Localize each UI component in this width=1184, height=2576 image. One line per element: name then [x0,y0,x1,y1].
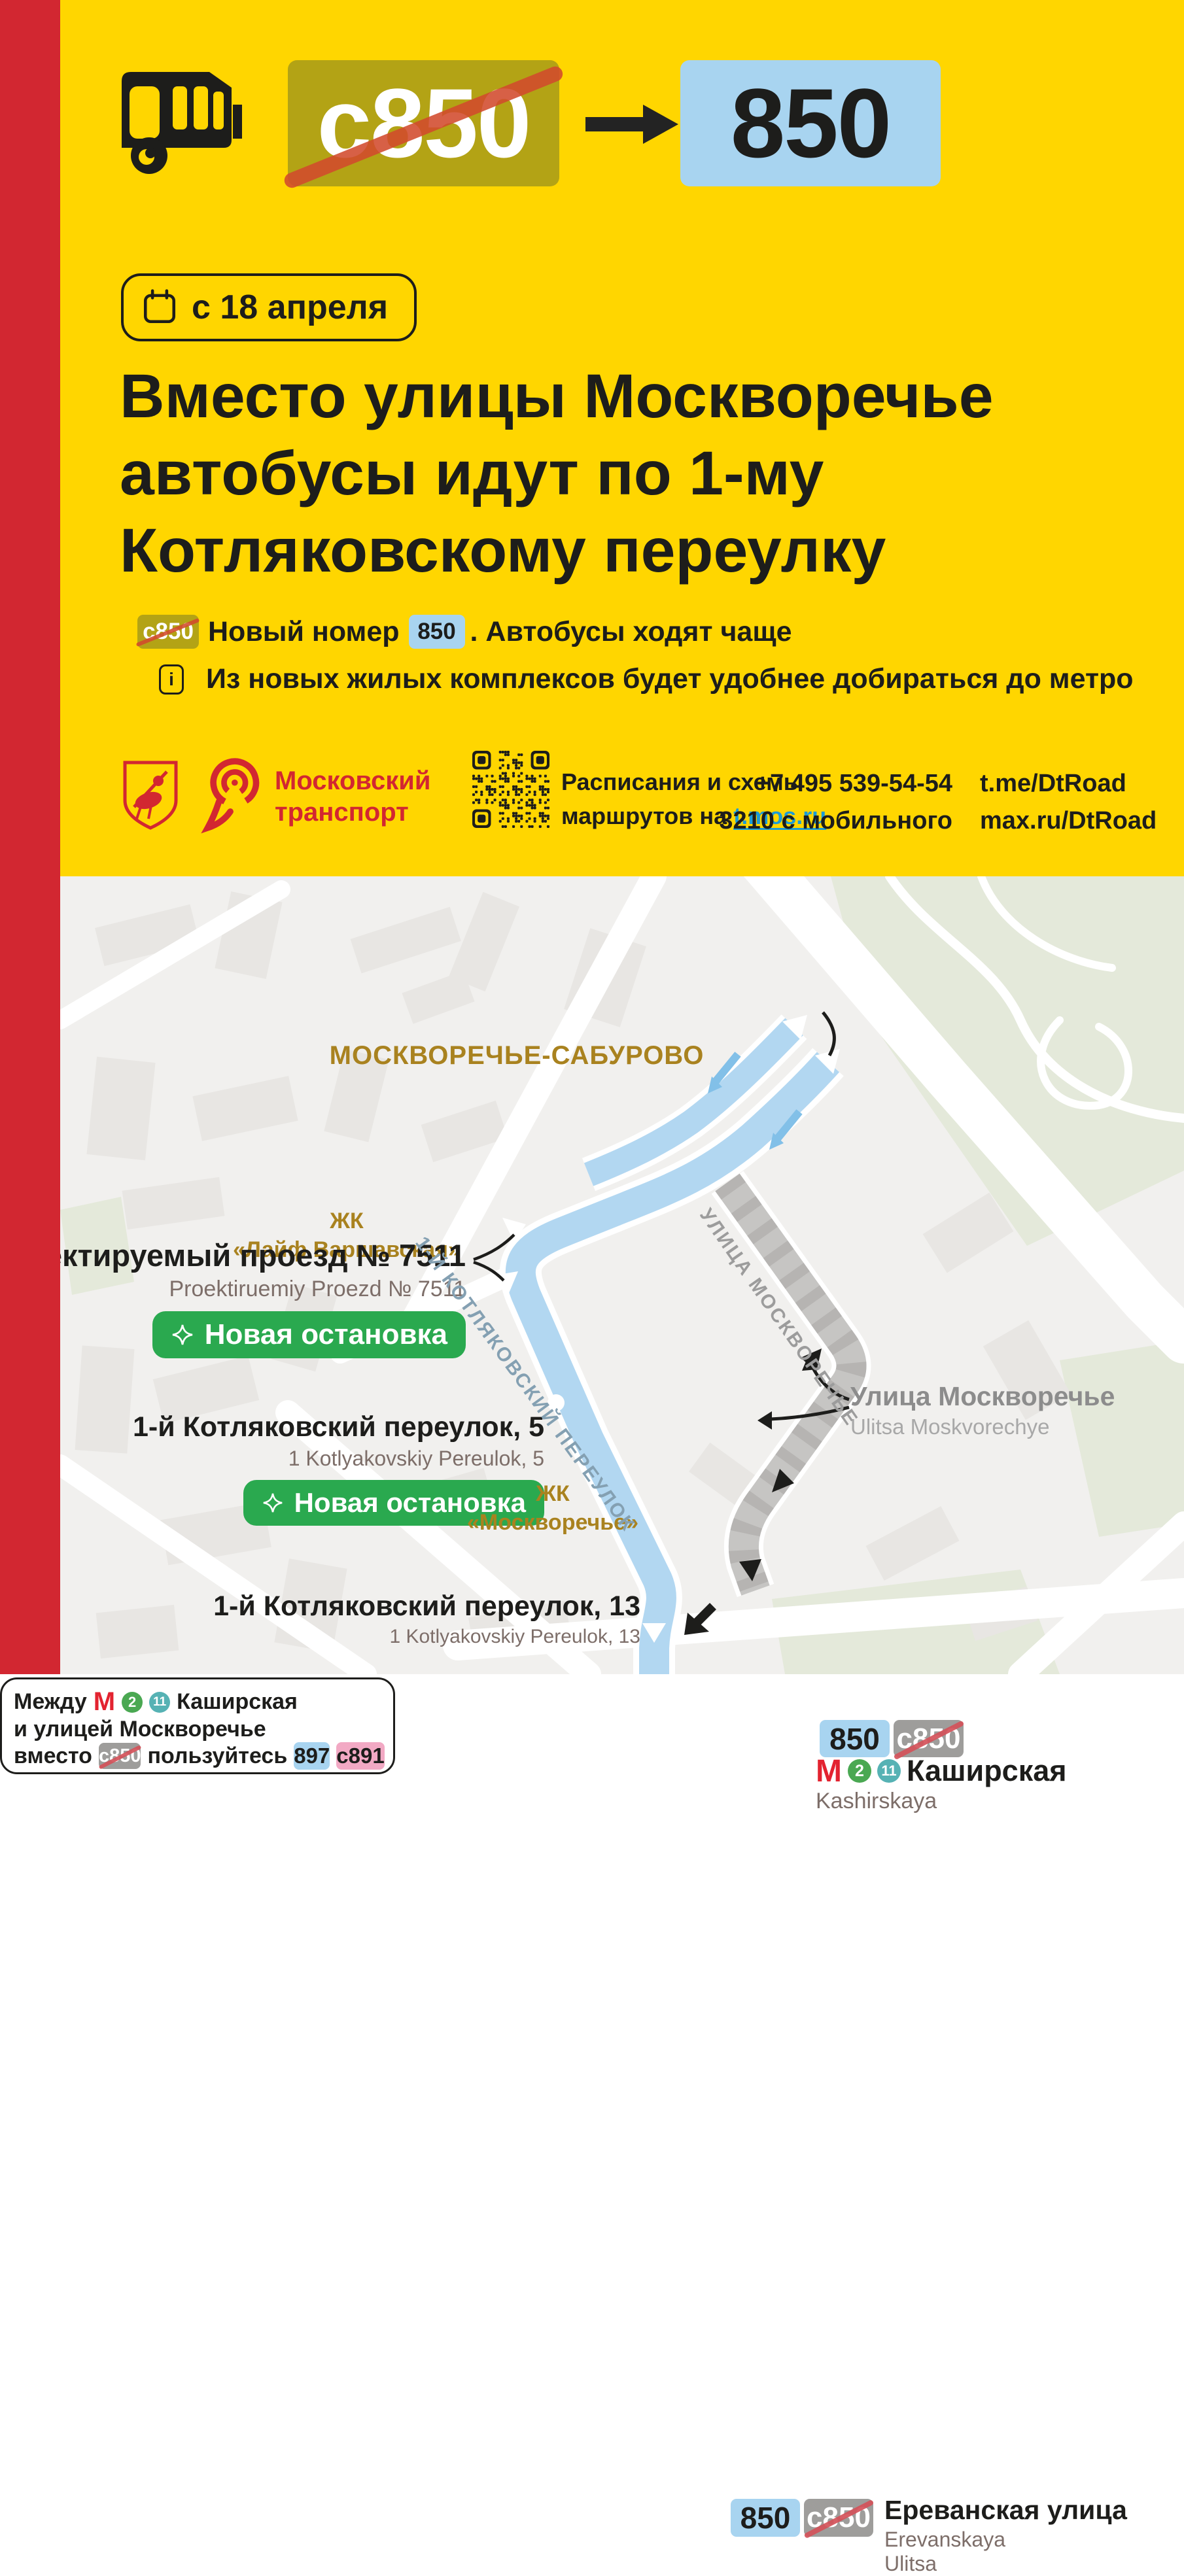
stop-proezd-7511: Проектируемый проезд № 7511 Proektiruemi… [65,1237,466,1358]
moscow-coat-of-arms-icon [121,759,180,832]
route-c850-cancelled-badge: с850 [894,1720,964,1757]
new-route-number-badge: 850 [680,60,941,186]
moscow-transport-logo-icon [200,753,263,836]
moskvorechye-street-label: Улица Москворечье Ulitsa Moskvorechye [850,1381,1115,1439]
calendar-icon [141,288,179,326]
route-c891-badge: с891 [336,1742,384,1770]
arrow-right-icon [580,98,678,150]
route-897-badge: 897 [294,1742,330,1770]
bullet-new-number: с850 Новый номер 850 . Автобусы ходят ча… [137,615,792,649]
metro-line-11-icon: 11 [149,1692,170,1713]
headline: Вместо улицы Москворечье автобусы идут п… [120,358,1153,589]
sparkle-diamond-icon [171,1323,194,1347]
metro-logo-icon: М [816,1753,842,1789]
qr-code [472,751,549,828]
station-name: Каширская [907,1754,1067,1788]
metro-logo-icon: М [94,1687,115,1717]
announcement-panel: с850 850 с 18 апреля Вместо улицы Москво… [60,0,1184,876]
district-label: МОСКВОРЕЧЬЕ-САБУРОВО [275,1039,759,1073]
metro-line-11-icon: 11 [877,1759,901,1783]
bullet-info: i Из новых жилых комплексов будет удобне… [159,663,1134,695]
old-route-small-badge: с850 [137,615,199,649]
street-name: Ереванская улица [884,2495,1127,2526]
new-route-small-badge: 850 [409,615,465,649]
new-stop-badge: Новая остановка [152,1311,466,1358]
zhk-moskvorechye-label: ЖК «Москворечье» [422,1479,684,1537]
brand-name: Московский транспорт [275,765,430,828]
old-route-number-badge: с850 [288,60,559,186]
street-name-translit: Erevanskaya Ulitsa [884,2528,1005,2576]
station-name-translit: Kashirskaya [816,1789,937,1814]
route-850-badge: 850 [820,1720,890,1757]
route-c850-cancelled-badge: с850 [804,2499,873,2537]
route-c850-cancelled-badge: с850 [99,1743,141,1769]
route-850-badge: 850 [731,2499,800,2537]
left-accent-stripe [0,0,60,1674]
bus-icon [113,64,260,175]
telegram-link[interactable]: t.me/DtRoad [980,765,1157,802]
phone-number: +7 495 539-54-54 [691,765,952,802]
contact-phones: +7 495 539-54-54 3210 с мобильного [691,765,952,840]
phone-mobile: 3210 с мобильного [691,802,952,840]
route-map: 850 с850 М 2 11 Каширская Kashirskaya МО… [0,876,1184,1674]
sparkle-diamond-icon [262,1492,284,1514]
social-links: t.me/DtRoad max.ru/DtRoad [980,765,1157,840]
metro-line-2-icon: 2 [848,1759,871,1783]
start-date-badge: с 18 апреля [121,273,417,341]
info-icon: i [159,664,184,695]
max-link[interactable]: max.ru/DtRoad [980,802,1157,840]
stop-kotlyakovsky-13: 1-й Котляковский переулок, 13 1 Kotlyako… [260,1590,640,1648]
start-date-text: с 18 апреля [192,288,388,327]
alternative-routes-info-box: Между М 2 11 Каширская и улицей Москворе… [0,1677,395,1774]
metro-line-2-icon: 2 [122,1692,143,1713]
